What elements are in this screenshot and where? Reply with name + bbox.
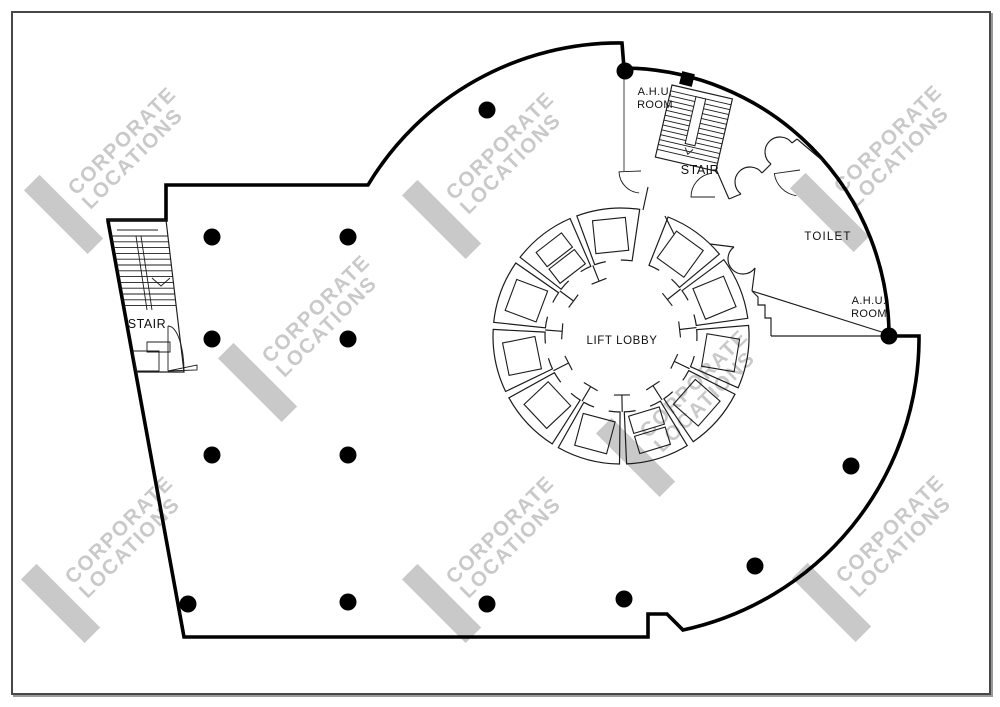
lift-car-holder	[592, 217, 628, 253]
ahu-top-door-swing	[619, 171, 641, 193]
column-dot	[340, 594, 357, 611]
lift-car-pair	[635, 427, 671, 453]
column-dot	[180, 596, 197, 613]
toilet-wall	[752, 268, 755, 291]
shaft-separator-cap	[662, 293, 672, 306]
lift-shaft	[664, 371, 735, 442]
lift-lobby-ring	[493, 208, 749, 464]
stair-tread	[668, 101, 728, 115]
column-dot	[881, 328, 898, 345]
stair-top-enclosure	[655, 85, 732, 171]
lift-car-holder	[702, 334, 740, 372]
toilet-wall	[765, 137, 792, 164]
lift-car	[524, 382, 571, 429]
column-dot	[479, 102, 496, 119]
wall-marker	[679, 71, 695, 87]
lift-shaft	[577, 208, 640, 265]
lift-car-pair	[629, 407, 665, 433]
lift-shaft	[493, 329, 552, 391]
toilet-wall	[792, 139, 797, 143]
door-jamb	[147, 342, 170, 352]
stair-top-group	[655, 85, 732, 171]
watermark-logo-bar	[21, 564, 100, 643]
lift-shaft	[649, 217, 719, 287]
stair-tread	[667, 105, 727, 119]
lift-car-holder	[674, 379, 721, 426]
lift-car-pair	[536, 233, 572, 267]
label-ahu-room-top-line1: A.H.U.	[638, 86, 673, 98]
watermark-text-line1: CORPORATE	[443, 89, 558, 204]
stair-tread	[662, 130, 722, 144]
toilet-door-swing	[774, 170, 800, 196]
watermark-logo-bar	[790, 173, 869, 252]
watermark-text-line1: CORPORATE	[259, 252, 374, 367]
stair-tread	[664, 120, 724, 134]
wall-marker-holder	[679, 71, 695, 87]
shaft-separator	[667, 289, 680, 300]
lift-car-pair	[549, 249, 585, 283]
watermark-text-line2: LOCATIONS	[273, 266, 388, 381]
watermark-text-line2: LOCATIONS	[845, 96, 960, 211]
lift-shaft	[691, 325, 750, 387]
shaft-separator-cap	[565, 356, 572, 370]
columns-group	[180, 63, 898, 613]
toilet-wall	[728, 247, 755, 274]
stair-tread	[659, 140, 719, 154]
stair-direction-arrow-icon	[684, 148, 693, 156]
label-toilet-line1: TOILET	[804, 231, 851, 243]
stair-tread	[670, 96, 730, 110]
column-dot	[617, 63, 634, 80]
stair-top-divider	[685, 97, 706, 146]
column-dot	[204, 229, 221, 246]
shaft-separator-cap	[569, 295, 579, 308]
lift-shaft	[682, 260, 748, 326]
label-toilet: TOILET	[804, 231, 851, 243]
lift-car-holder	[503, 336, 542, 375]
shaft-separator	[680, 328, 697, 330]
column-dot	[204, 331, 221, 348]
stair-tread	[666, 110, 726, 124]
watermark-text-line1: CORPORATE	[831, 82, 946, 197]
watermark-text-line1: CORPORATE	[65, 84, 180, 199]
shaft-separator	[593, 265, 599, 281]
column-dot	[340, 447, 357, 464]
lift-shaft	[509, 373, 580, 444]
label-lift-lobby: LIFT LOBBY	[587, 335, 658, 347]
lift-car	[503, 336, 542, 375]
lift-car	[575, 413, 615, 453]
shaft-separator-cap	[584, 383, 598, 391]
toilet-wall	[752, 291, 771, 336]
stair-tread	[657, 149, 717, 163]
shaft-separator-cap	[592, 278, 607, 284]
toilet-wall	[797, 139, 823, 161]
toilet-wall	[735, 167, 762, 194]
lift-car	[702, 334, 740, 372]
lift-car-holder	[505, 279, 547, 321]
lift-shaft	[624, 401, 687, 464]
drawing-border	[11, 11, 991, 695]
column-dot	[843, 458, 860, 475]
watermark-logo-bar	[792, 563, 871, 642]
floorplan-canvas: CORPORATELOCATIONSCORPORATELOCATIONSCORP…	[0, 0, 1000, 707]
building-outline	[108, 43, 919, 637]
shaft-separator-cap	[679, 322, 681, 338]
toilet-wall	[729, 194, 741, 199]
toilet-wall	[752, 291, 888, 334]
column-dot	[479, 596, 496, 613]
watermark-logo-bar	[596, 418, 675, 497]
label-stair-top: STAIR	[681, 163, 719, 177]
stair-tread	[665, 115, 725, 129]
toilet-wall	[710, 244, 734, 247]
shaft-separator-cap	[671, 354, 678, 369]
watermark-text-line1: CORPORATE	[443, 473, 558, 588]
column-dot	[616, 591, 633, 608]
watermark-logo-bar	[402, 180, 481, 259]
watermark-text-line1: CORPORATE	[833, 472, 948, 587]
watermark-logo-bar	[24, 175, 103, 254]
lift-car-holder	[657, 231, 703, 277]
toilet-wall	[762, 164, 771, 173]
stair-left-closet	[133, 351, 159, 371]
shaft-separator	[674, 361, 689, 368]
stair-tread	[661, 135, 721, 149]
column-dot	[204, 447, 221, 464]
watermark-text-line1: CORPORATE	[62, 473, 177, 588]
stair-top-connector-walls	[643, 169, 729, 234]
watermark-text-line2: LOCATIONS	[457, 487, 572, 602]
door-swing-arc	[168, 326, 184, 371]
door-threshold	[168, 365, 197, 371]
stair-top-door-swing	[691, 173, 715, 197]
watermark-text-line2: LOCATIONS	[651, 341, 766, 456]
stair-left-group	[108, 220, 197, 372]
watermark-text-line2: LOCATIONS	[847, 486, 962, 601]
label-ahu-room-top-line2: ROOM	[637, 99, 673, 111]
lift-car	[657, 231, 703, 277]
floorplan-svg: LIFT LOBBYSTAIRSTAIRTOILETA.H.U.ROOMA.H.…	[0, 0, 1000, 707]
lift-car	[505, 279, 547, 321]
label-stair-left: STAIR	[128, 317, 166, 331]
shaft-separator	[653, 386, 662, 400]
shaft-separator	[545, 330, 562, 331]
stair-left-divider	[136, 236, 152, 310]
column-dot	[340, 229, 357, 246]
toilet-walls-group	[710, 137, 888, 336]
lift-shaft	[520, 219, 591, 290]
watermark-logo-bar	[402, 564, 481, 643]
lift-shaft	[494, 263, 559, 328]
watermark-text-line2: LOCATIONS	[79, 98, 194, 213]
stair-direction-arrow-icon	[152, 278, 170, 286]
lift-car	[635, 427, 671, 453]
stair-tread	[663, 125, 723, 139]
label-ahu-room-right-line2: ROOM	[851, 308, 887, 320]
lift-car-holder	[693, 276, 736, 319]
lift-car-holder	[524, 382, 571, 429]
lift-car	[674, 379, 721, 426]
label-stair-left-line1: STAIR	[128, 317, 166, 331]
lift-car	[693, 276, 736, 319]
watermark-logo-bar	[218, 343, 297, 422]
stair-left-enclosure	[108, 220, 184, 372]
shaft-separator	[560, 291, 574, 301]
lift-car	[536, 233, 572, 267]
watermark-text-line2: LOCATIONS	[76, 487, 191, 602]
shaft-separator	[553, 363, 568, 371]
lift-car	[629, 407, 665, 433]
lift-shaft	[558, 402, 620, 464]
label-ahu-room-right-line1: A.H.U.	[852, 295, 887, 307]
label-ahu-room-right: A.H.U.ROOM	[851, 295, 887, 320]
shaft-separator-cap	[562, 323, 563, 339]
shaft-separator-cap	[646, 381, 659, 390]
lift-car	[592, 217, 628, 253]
label-ahu-room-top: A.H.U.ROOM	[637, 86, 673, 111]
label-stair-top-line1: STAIR	[681, 163, 719, 177]
watermark-text-line1: CORPORATE	[637, 327, 752, 442]
column-dot	[340, 331, 357, 348]
lift-car	[549, 249, 585, 283]
column-dot	[747, 558, 764, 575]
stair-tread	[658, 144, 718, 158]
stair-tread	[671, 91, 731, 105]
watermark-text-line2: LOCATIONS	[457, 103, 572, 218]
shaft-separator	[582, 387, 591, 402]
label-lift-lobby-line1: LIFT LOBBY	[587, 335, 658, 347]
lift-car-holder	[575, 413, 615, 453]
